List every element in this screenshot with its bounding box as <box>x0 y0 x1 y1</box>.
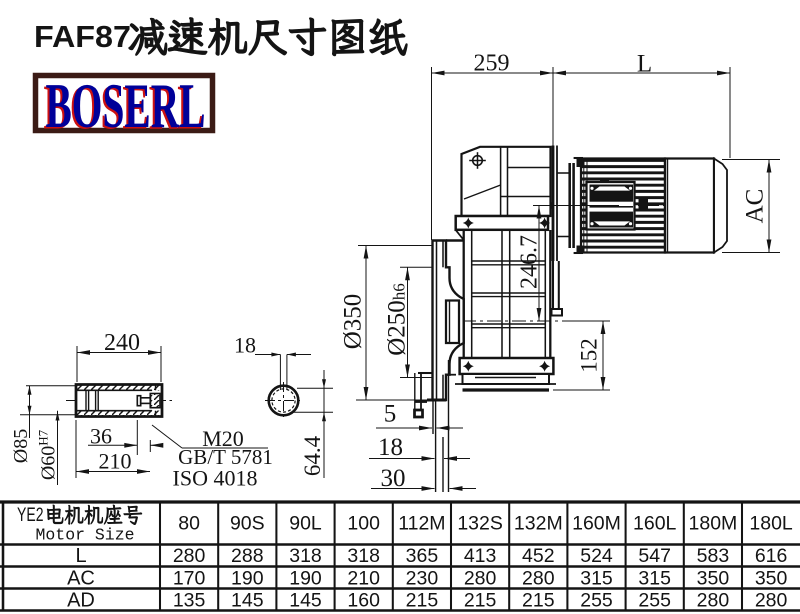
svg-text:318: 318 <box>347 545 380 567</box>
svg-text:350: 350 <box>755 567 788 589</box>
svg-text:170: 170 <box>173 567 206 589</box>
svg-text:ISO 4018: ISO 4018 <box>173 466 258 491</box>
svg-text:18: 18 <box>234 333 256 358</box>
svg-text:210: 210 <box>347 567 380 589</box>
svg-text:90S: 90S <box>230 513 265 535</box>
svg-text:YE2: YE2 <box>17 505 44 526</box>
svg-text:190: 190 <box>289 567 322 589</box>
svg-text:280: 280 <box>464 567 497 589</box>
svg-text:210: 210 <box>99 449 132 474</box>
svg-text:132S: 132S <box>457 513 503 535</box>
svg-text:190: 190 <box>231 567 264 589</box>
svg-text:280: 280 <box>522 567 555 589</box>
svg-text:180M: 180M <box>689 513 738 535</box>
svg-text:L: L <box>75 545 86 567</box>
svg-text:AC: AC <box>67 567 95 589</box>
svg-text:160L: 160L <box>633 513 677 535</box>
svg-text:L: L <box>637 51 652 78</box>
svg-text:230: 230 <box>406 567 439 589</box>
svg-text:315: 315 <box>580 567 613 589</box>
svg-text:413: 413 <box>464 545 497 567</box>
svg-text:90L: 90L <box>289 513 322 535</box>
svg-text:135: 135 <box>173 590 206 612</box>
svg-text:30: 30 <box>381 465 406 492</box>
svg-text:547: 547 <box>638 545 671 567</box>
svg-text:215: 215 <box>406 590 439 612</box>
svg-text:583: 583 <box>697 545 730 567</box>
svg-text:365: 365 <box>406 545 439 567</box>
svg-text:152: 152 <box>577 338 602 373</box>
svg-text:315: 315 <box>638 567 671 589</box>
svg-text:255: 255 <box>580 590 613 612</box>
svg-text:80: 80 <box>178 513 200 535</box>
svg-text:280: 280 <box>697 590 730 612</box>
svg-text:64.4: 64.4 <box>300 435 325 476</box>
svg-text:255: 255 <box>638 590 671 612</box>
svg-text:215: 215 <box>464 590 497 612</box>
svg-text:215: 215 <box>522 590 555 612</box>
svg-text:36: 36 <box>90 424 112 449</box>
svg-text:160: 160 <box>347 590 380 612</box>
svg-text:5: 5 <box>384 401 397 428</box>
svg-text:FAF87: FAF87 <box>34 19 131 54</box>
svg-text:AD: AD <box>67 590 95 612</box>
svg-text:Ø350: Ø350 <box>340 294 367 350</box>
svg-text:280: 280 <box>173 545 206 567</box>
svg-text:246.7: 246.7 <box>517 235 543 289</box>
svg-text:Ø85: Ø85 <box>10 429 32 463</box>
svg-text:350: 350 <box>697 567 730 589</box>
svg-text:180L: 180L <box>749 513 793 535</box>
svg-text:112M: 112M <box>398 513 445 535</box>
svg-text:18: 18 <box>378 434 403 461</box>
svg-text:318: 318 <box>289 545 322 567</box>
svg-text:BOSERL: BOSERL <box>46 70 206 141</box>
svg-text:145: 145 <box>231 590 264 612</box>
svg-text:160M: 160M <box>572 513 621 535</box>
svg-text:452: 452 <box>522 545 555 567</box>
svg-text:616: 616 <box>755 545 788 567</box>
svg-text:240: 240 <box>104 330 140 356</box>
svg-text:132M: 132M <box>514 513 563 535</box>
svg-text:288: 288 <box>231 545 264 567</box>
svg-text:145: 145 <box>289 590 322 612</box>
svg-text:280: 280 <box>755 590 788 612</box>
svg-text:524: 524 <box>580 545 613 567</box>
svg-text:100: 100 <box>347 513 380 535</box>
svg-text:Motor Size: Motor Size <box>35 526 134 545</box>
svg-text:259: 259 <box>474 51 510 77</box>
svg-text:AC: AC <box>742 189 769 224</box>
